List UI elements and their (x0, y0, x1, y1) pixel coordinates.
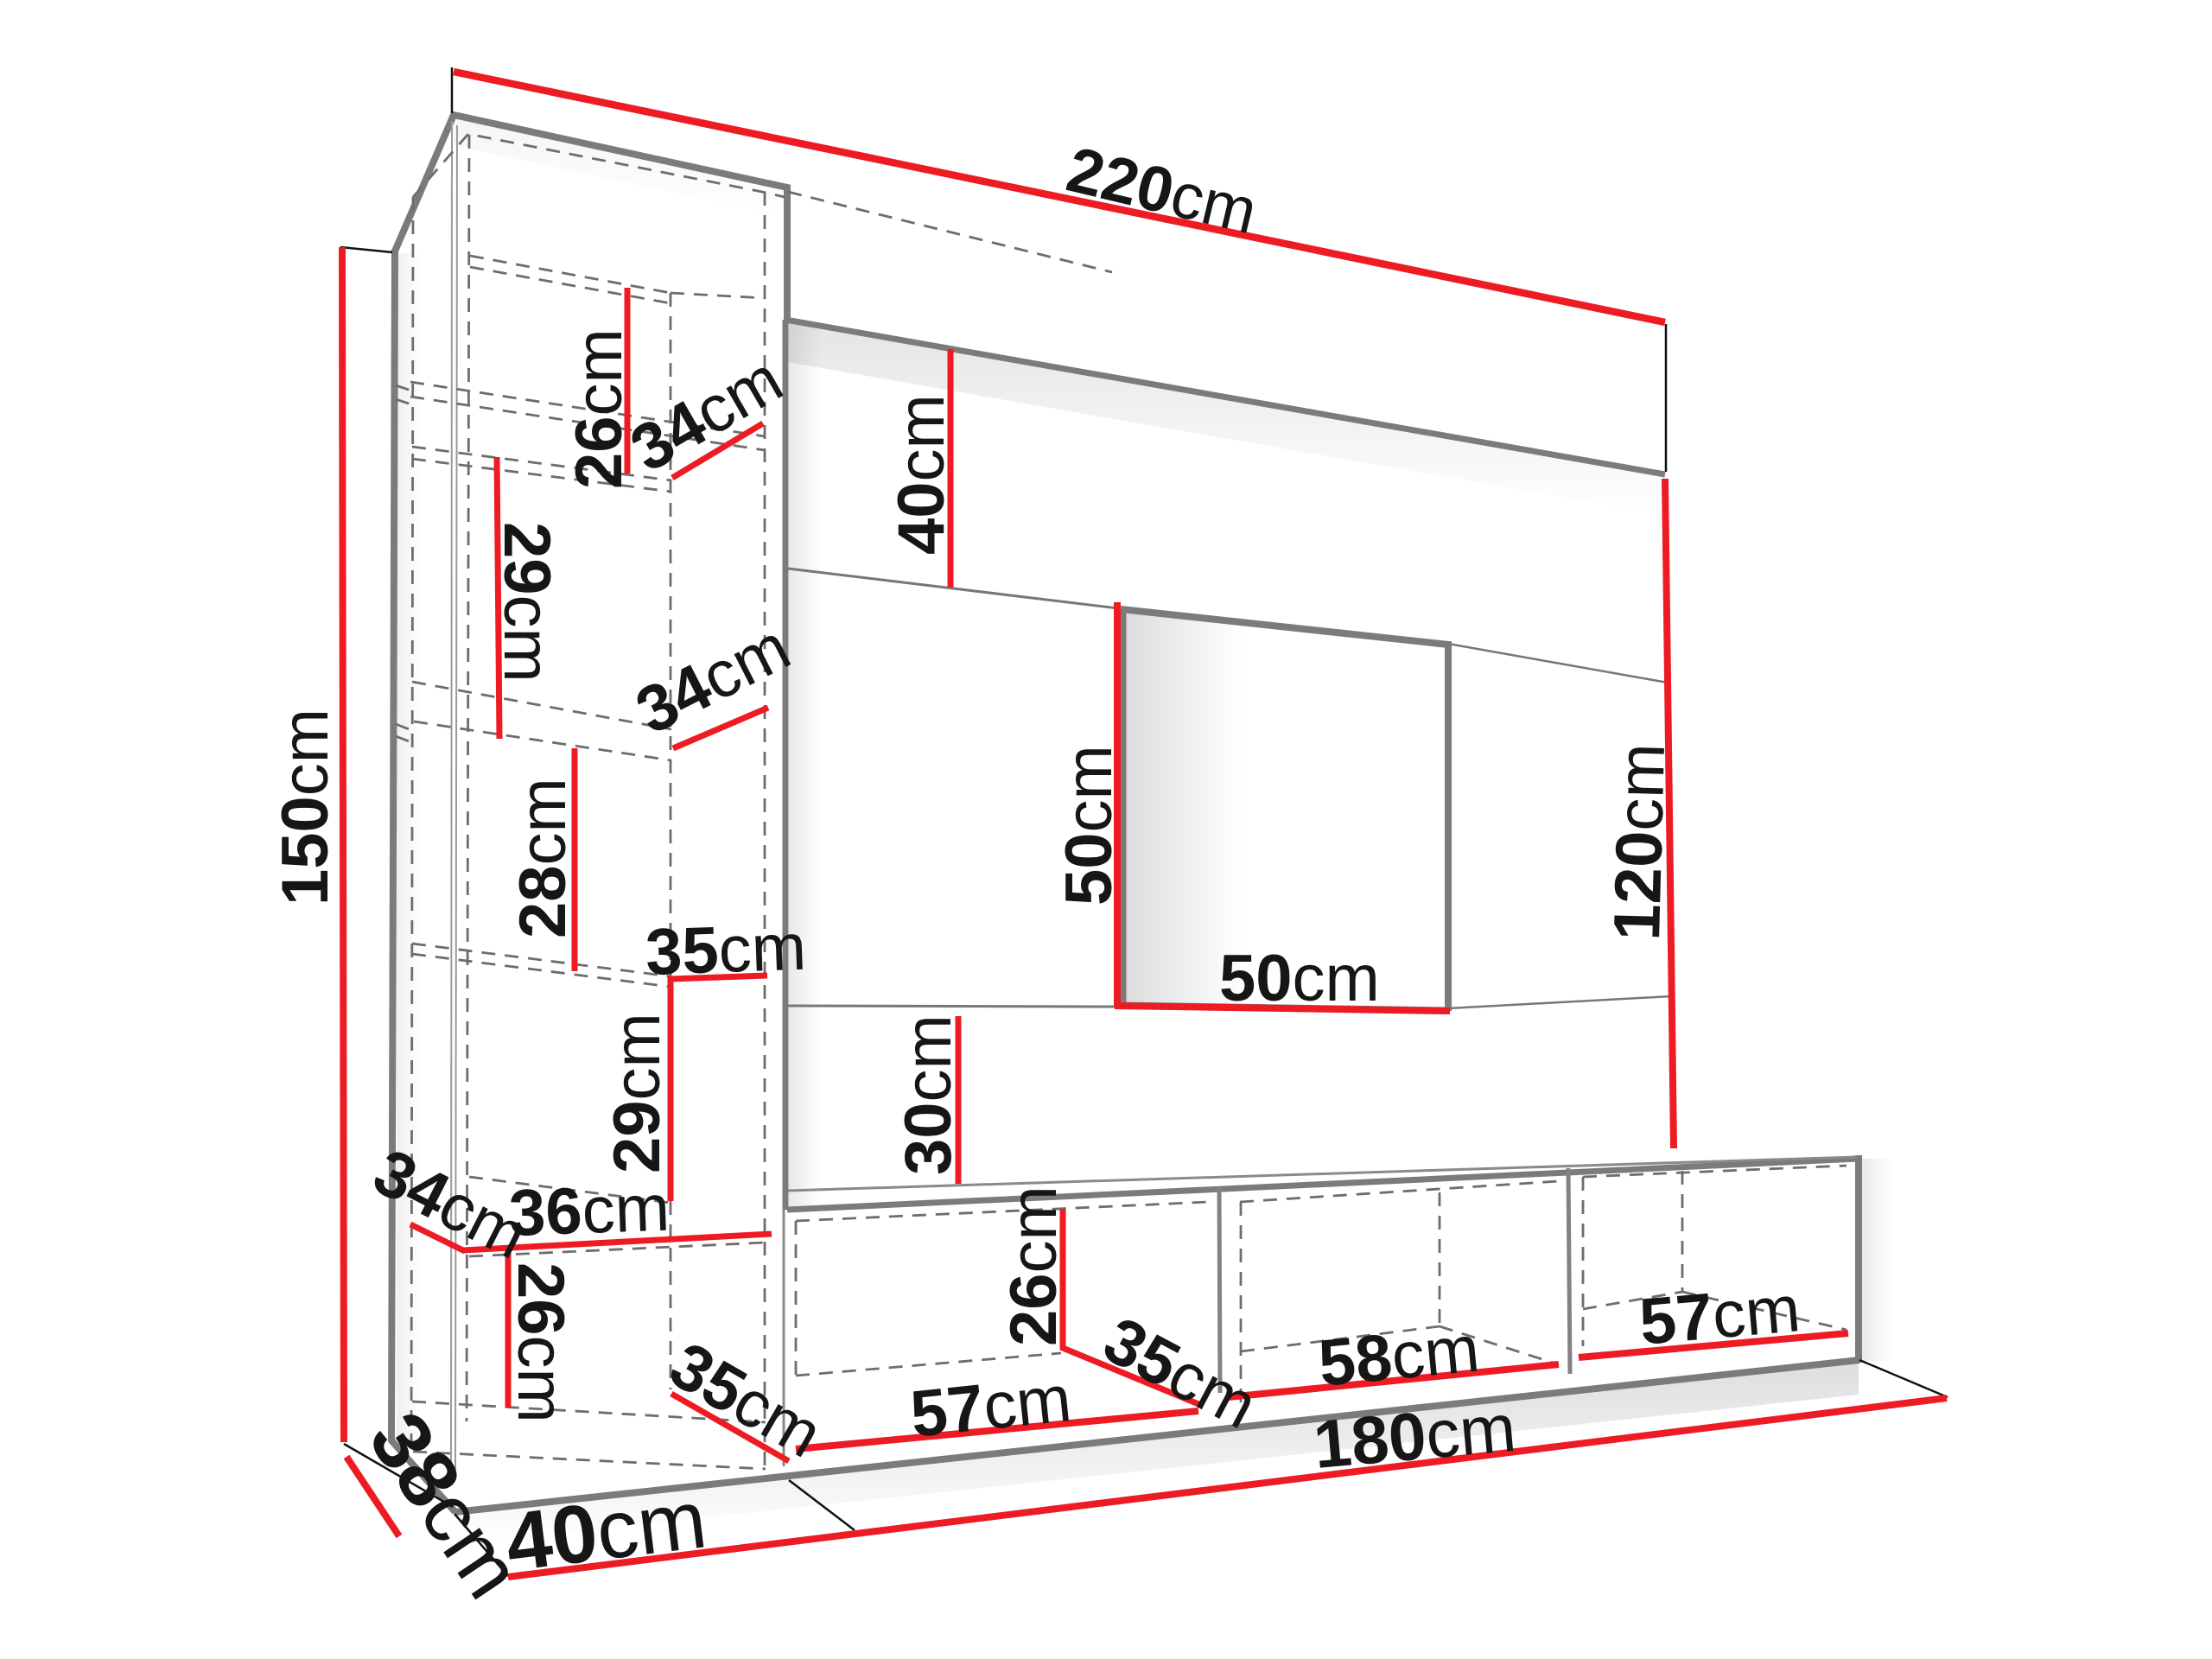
svg-text:26cm: 26cm (997, 1185, 1071, 1346)
svg-text:150cm: 150cm (269, 709, 342, 906)
svg-text:30cm: 30cm (892, 1014, 965, 1175)
svg-text:26cm: 26cm (504, 1262, 577, 1423)
svg-text:26cm: 26cm (563, 328, 636, 489)
svg-text:58cm: 58cm (1315, 1312, 1482, 1400)
svg-text:120cm: 120cm (1600, 742, 1679, 941)
svg-text:50cm: 50cm (1052, 745, 1126, 906)
svg-text:29cm: 29cm (601, 1013, 674, 1173)
svg-text:35cm: 35cm (645, 911, 808, 989)
svg-text:50cm: 50cm (1219, 942, 1380, 1015)
svg-text:28cm: 28cm (506, 778, 580, 938)
svg-text:29cm: 29cm (490, 522, 563, 683)
svg-text:40cm: 40cm (885, 394, 958, 555)
svg-text:57cm: 57cm (1637, 1272, 1803, 1359)
